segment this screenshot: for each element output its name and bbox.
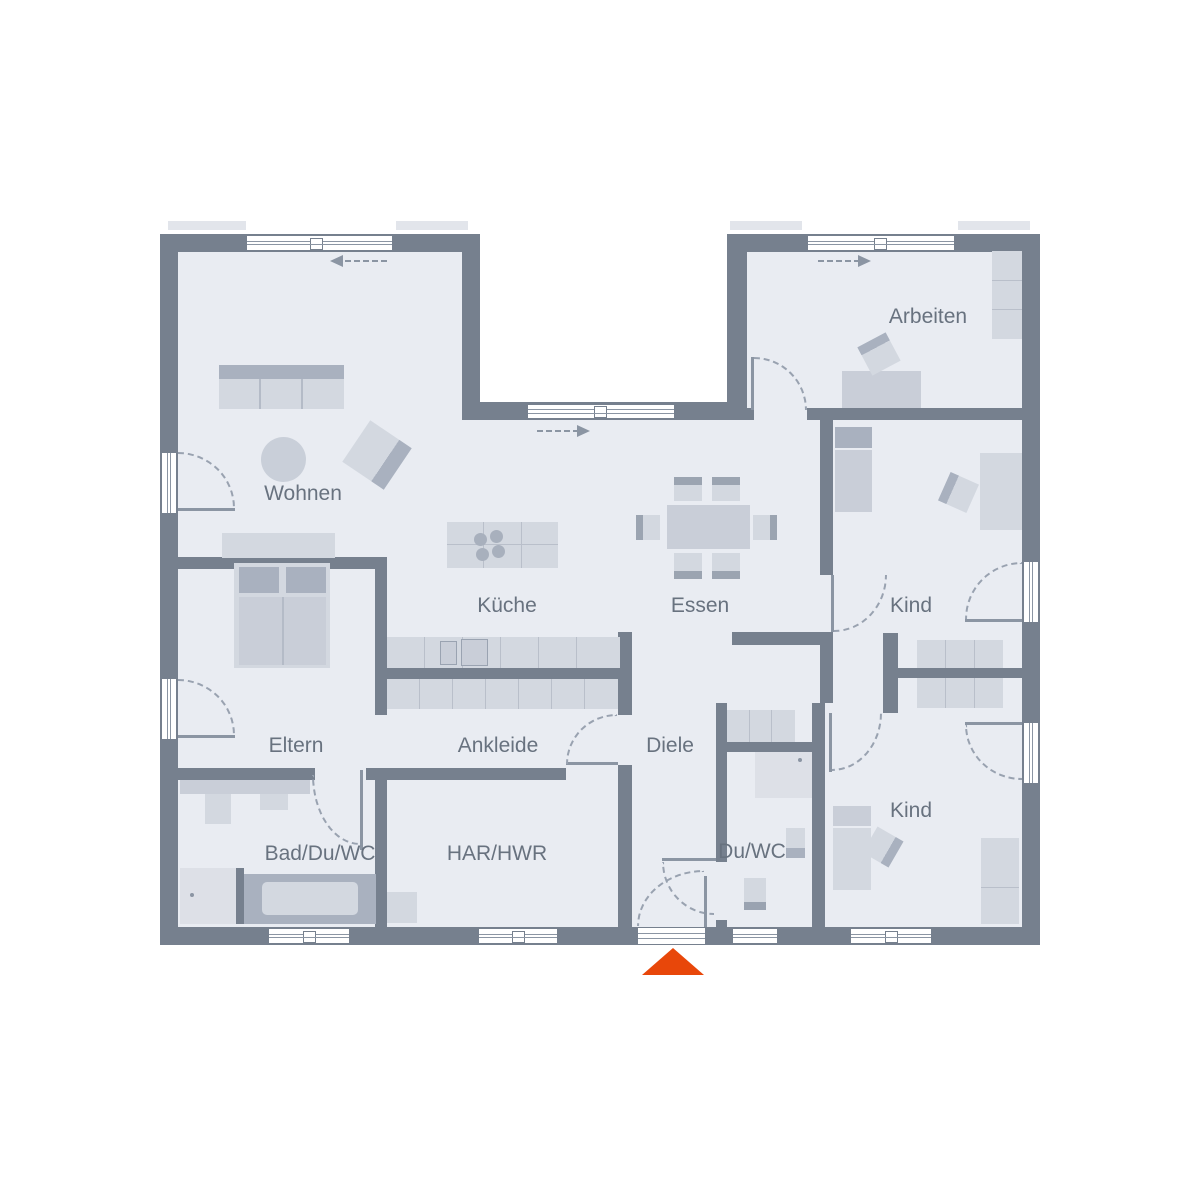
window-handle-icon [310,238,323,250]
cooktop-burner [476,548,489,561]
ankleide-wardrobe [387,679,618,709]
sill-top-right-a [730,221,802,230]
window-handle-icon [885,931,898,943]
sill-top-right-b [958,221,1030,230]
arrow-left-icon [330,255,343,267]
wall-ankleide-south [366,768,566,780]
kitchen-cooker [461,639,488,666]
wall-diele-kind-block [820,632,833,703]
kind1-bed [835,450,872,512]
window-arbeiten-top [807,235,955,251]
wall-eltern-south [160,768,315,780]
door-leaf-eltern-bad [360,770,363,850]
floorplan-canvas: Wohnen Küche Essen Arbeiten Kind Kind El… [0,0,1200,1200]
room-label-wohnen: Wohnen [264,482,342,506]
room-label-eltern: Eltern [269,734,324,758]
wall-counter-cap [618,632,632,715]
diele-wardrobe [727,710,795,742]
entrance-marker-icon [642,948,704,975]
dining-chair-left [636,515,660,540]
slide-arrow-line-recess [537,430,579,432]
sofa-backrest [219,365,344,379]
wall-duwc-east [812,703,825,945]
window-har-bottom [478,928,558,944]
wall-duwc-west-upper [716,703,727,862]
eltern-mattress [239,597,326,665]
window-handle-icon [512,931,525,943]
duwc-shower [755,752,812,798]
wall-kind-divider-west-block [883,633,898,713]
bad-shower [180,868,236,924]
room-label-diele: Diele [646,734,694,758]
room-label-duwc: Du/WC [718,840,786,864]
kind2-wardrobe-right [981,838,1019,924]
dining-chair-bottom-1 [674,553,702,579]
eltern-pillow-1 [239,567,279,593]
dining-chair-bottom-2 [712,553,740,579]
room-label-arbeiten: Arbeiten [889,305,967,329]
wall-bad-har [375,768,387,945]
window-handle-icon [594,406,607,418]
duwc-toilet [786,828,805,858]
dining-chair-right [753,515,777,540]
door-leaf-entrance [704,876,707,927]
window-handle-icon [303,931,316,943]
wall-har-east [618,765,632,945]
arbeiten-desk [842,371,921,408]
kind2-bed-pillow [833,806,871,826]
sofa-seats [219,379,344,409]
room-label-kind2: Kind [890,799,932,823]
door-leaf-kind1-terrace [965,619,1022,622]
sill-top-left-b [396,221,468,230]
room-label-kind1: Kind [890,594,932,618]
eltern-pillow-2 [286,567,326,593]
wall-exterior-left [160,234,178,945]
room-label-essen: Essen [671,594,729,618]
window-wohnen-top [246,235,393,251]
room-label-har: HAR/HWR [447,842,547,866]
wall-duwc-north [716,742,816,752]
slide-arrow-line-arbeiten [818,260,860,262]
kind1-desk [980,453,1022,530]
room-label-bad: Bad/Du/WC [265,842,376,866]
wall-eltern-east [375,557,387,715]
window-kind2-bottom [850,928,932,944]
kitchen-sink [440,641,457,665]
bathtub-inner [262,882,358,915]
sideboard-wohnen [222,533,335,558]
arbeiten-shelf [992,251,1022,339]
kind2-wardrobe-top [917,678,1003,708]
window-kind2-right [1023,722,1039,784]
bad-washbasin-2 [260,794,288,810]
wall-kueche-ankleide [385,668,620,679]
cooktop-burner [492,545,505,558]
wall-essen-kind1 [820,420,833,575]
door-leaf-eltern-terrace [178,735,235,738]
kitchen-wall-counter [387,637,620,668]
entrance-door-opening [637,927,706,945]
slide-arrow-line-wohnen [345,260,387,262]
wall-duwc-west-lower [716,920,727,945]
dining-chair-top-2 [712,477,740,501]
wall-recess-left [462,234,480,420]
room-label-ankleide: Ankleide [458,734,539,758]
bad-vanity-counter [180,780,310,794]
bad-washbasin-1 [205,794,231,824]
cooktop-burner [474,533,487,546]
window-kind1-right [1023,561,1039,623]
window-handle-icon [874,238,887,250]
wall-essen-south [732,632,833,645]
side-table [261,437,306,482]
wall-recess-right [727,234,747,420]
wall-arbeiten-south-b [807,408,1040,420]
cooktop-burner [490,530,503,543]
arrow-right-icon [858,255,871,267]
wall-kind-divider [895,668,1022,678]
dining-table [667,505,750,549]
kitchen-island [447,522,558,568]
kind2-bed [833,828,871,890]
window-eltern-left [161,678,177,740]
sill-top-left-a [168,221,246,230]
door-leaf-duwc [662,858,716,861]
window-duwc-bottom [732,928,778,944]
dining-chair-top-1 [674,477,702,501]
shower-drain-icon [798,758,802,762]
window-recess [527,404,675,419]
room-label-kueche: Küche [477,594,537,618]
arrow-right-icon [577,425,590,437]
window-wohnen-left [161,452,177,514]
bad-shower-partition [236,868,244,924]
window-bad-bottom [268,928,350,944]
kind1-bed-pillow [835,427,872,448]
har-appliance [387,892,417,923]
duwc-washbasin [744,878,766,910]
kind1-wardrobe [917,640,1003,668]
door-leaf-wohnen-terrace [178,508,235,511]
shower-drain-icon [190,893,194,897]
